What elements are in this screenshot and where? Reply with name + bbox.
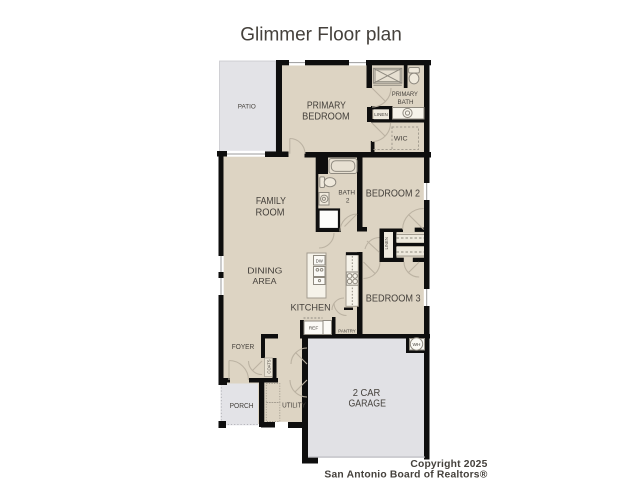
svg-text:WIC: WIC bbox=[394, 136, 408, 143]
svg-text:FAMILY: FAMILY bbox=[256, 196, 286, 207]
svg-text:BATH: BATH bbox=[338, 189, 355, 196]
svg-text:BEDROOM 2: BEDROOM 2 bbox=[366, 189, 420, 200]
svg-text:PRIMARY: PRIMARY bbox=[392, 91, 419, 98]
svg-text:FOYER: FOYER bbox=[232, 342, 255, 351]
svg-text:BEDROOM: BEDROOM bbox=[302, 111, 350, 122]
svg-text:KITCHEN: KITCHEN bbox=[291, 303, 331, 313]
svg-text:LINEN: LINEN bbox=[384, 237, 389, 249]
svg-text:LINEN: LINEN bbox=[374, 112, 388, 117]
svg-text:PORCH: PORCH bbox=[230, 403, 254, 410]
svg-text:2: 2 bbox=[346, 197, 350, 204]
svg-text:ROOM: ROOM bbox=[256, 208, 285, 219]
svg-text:2 CAR: 2 CAR bbox=[353, 388, 381, 399]
svg-text:DW: DW bbox=[316, 259, 323, 264]
svg-text:WH: WH bbox=[413, 342, 421, 347]
svg-text:GARAGE: GARAGE bbox=[348, 399, 386, 410]
svg-text:PANTRY: PANTRY bbox=[338, 329, 356, 334]
svg-text:San Antonio Board of Realtors®: San Antonio Board of Realtors® bbox=[324, 470, 487, 480]
svg-text:COATS: COATS bbox=[267, 359, 272, 373]
svg-text:BEDROOM 3: BEDROOM 3 bbox=[366, 293, 421, 304]
svg-text:PATIO: PATIO bbox=[238, 104, 256, 111]
svg-text:UTILITY: UTILITY bbox=[282, 403, 306, 410]
svg-text:DINING: DINING bbox=[247, 265, 282, 275]
svg-text:Copyright 2025: Copyright 2025 bbox=[410, 459, 487, 470]
svg-text:Glimmer Floor plan: Glimmer Floor plan bbox=[240, 25, 402, 46]
svg-text:BATH: BATH bbox=[397, 99, 413, 106]
svg-text:AREA: AREA bbox=[253, 276, 277, 286]
svg-text:PRIMARY: PRIMARY bbox=[307, 100, 346, 111]
svg-text:REF: REF bbox=[309, 326, 319, 331]
